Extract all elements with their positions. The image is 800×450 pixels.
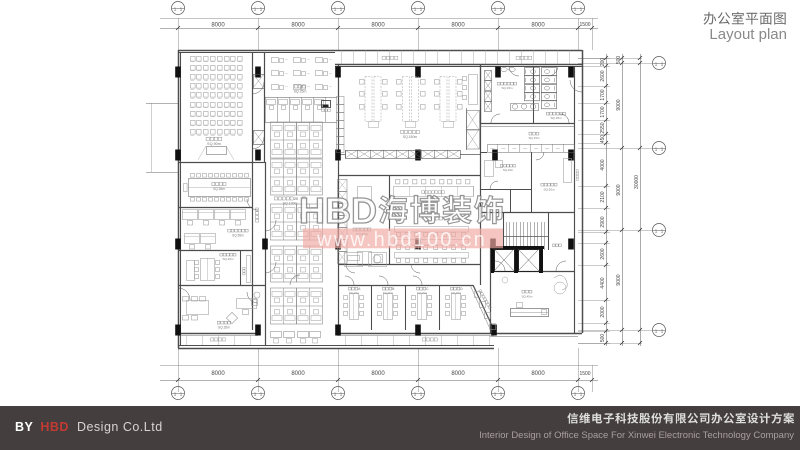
svg-text:1: 1	[655, 328, 658, 333]
svg-text:SQ.18m: SQ.18m	[550, 116, 562, 120]
svg-text:1: 1	[260, 6, 263, 11]
svg-text:1: 1	[655, 61, 658, 66]
svg-text:2600: 2600	[600, 248, 606, 259]
svg-text:1: 1	[661, 228, 664, 233]
svg-text:500: 500	[600, 334, 606, 343]
svg-text:450: 450	[600, 135, 606, 144]
svg-text:1: 1	[174, 6, 177, 11]
svg-text:4000: 4000	[600, 159, 606, 170]
svg-text:8000: 8000	[451, 23, 465, 29]
svg-text:1: 1	[420, 6, 423, 11]
svg-text:SQ.90m: SQ.90m	[207, 142, 221, 146]
svg-text:1: 1	[334, 6, 337, 11]
svg-text:SQ.150m: SQ.150m	[403, 135, 417, 139]
svg-text:SQ.15m: SQ.15m	[451, 291, 462, 295]
svg-text:8000: 8000	[371, 23, 385, 29]
svg-text:1: 1	[340, 391, 343, 396]
svg-text:SQ.50m: SQ.50m	[543, 188, 555, 192]
svg-text:1: 1	[180, 6, 183, 11]
svg-text:1500: 1500	[579, 371, 590, 377]
svg-text:SQ.35m: SQ.35m	[213, 187, 225, 191]
svg-text:1: 1	[254, 6, 257, 11]
svg-text:1: 1	[180, 391, 183, 396]
svg-text:SQ.15m: SQ.15m	[528, 136, 540, 140]
svg-text:1: 1	[494, 391, 497, 396]
svg-text:1: 1	[340, 6, 343, 11]
svg-text:200: 200	[600, 58, 606, 67]
svg-text:8000: 8000	[211, 371, 225, 377]
svg-text:1: 1	[661, 61, 664, 66]
svg-text:SQ.15m: SQ.15m	[417, 291, 428, 295]
svg-text:1: 1	[574, 391, 577, 396]
svg-text:8000: 8000	[531, 371, 545, 377]
svg-text:8000: 8000	[291, 371, 305, 377]
svg-text:SQ.25m: SQ.25m	[222, 257, 234, 261]
svg-text:1: 1	[655, 146, 658, 151]
svg-text:SQ.15m: SQ.15m	[349, 291, 360, 295]
svg-text:1: 1	[574, 6, 577, 11]
svg-text:8000: 8000	[531, 23, 545, 29]
svg-text:2000: 2000	[600, 306, 606, 317]
svg-text:1: 1	[655, 228, 658, 233]
svg-text:1700: 1700	[600, 106, 606, 117]
svg-text:9000: 9000	[616, 184, 622, 195]
svg-text:1: 1	[334, 391, 337, 396]
svg-text:1: 1	[500, 6, 503, 11]
svg-text:2600: 2600	[600, 70, 606, 81]
svg-text:9000: 9000	[616, 99, 622, 110]
svg-text:30000: 30000	[634, 175, 640, 189]
svg-text:2900: 2900	[600, 216, 606, 227]
svg-text:SQ.15m: SQ.15m	[501, 86, 513, 90]
svg-text:9000: 9000	[616, 274, 622, 285]
svg-text:1: 1	[580, 6, 583, 11]
svg-text:SQ.55m: SQ.55m	[232, 234, 244, 238]
svg-text:HBD: HBD	[299, 190, 377, 231]
svg-text:1: 1	[420, 391, 423, 396]
svg-text:1: 1	[174, 391, 177, 396]
svg-text:1: 1	[580, 391, 583, 396]
svg-text:1500: 1500	[579, 22, 590, 28]
svg-text:4400: 4400	[600, 277, 606, 288]
svg-text:SQ.35m: SQ.35m	[218, 326, 230, 330]
svg-text:SQ.25m: SQ.25m	[294, 90, 307, 94]
svg-text:2550: 2550	[600, 122, 606, 133]
svg-text:1: 1	[260, 391, 263, 396]
svg-text:1: 1	[414, 391, 417, 396]
svg-text:SQ.10m: SQ.10m	[503, 168, 514, 172]
svg-text:www.hbd100.cn: www.hbd100.cn	[316, 229, 487, 251]
svg-text:1: 1	[500, 391, 503, 396]
svg-text:1: 1	[661, 328, 664, 333]
svg-text:1: 1	[494, 6, 497, 11]
svg-text:500: 500	[616, 56, 622, 65]
svg-text:1: 1	[661, 146, 664, 151]
svg-text:1700: 1700	[600, 89, 606, 100]
svg-text:8000: 8000	[211, 23, 225, 29]
svg-text:2100: 2100	[600, 191, 606, 202]
svg-text:1: 1	[414, 6, 417, 11]
svg-text:1: 1	[254, 391, 257, 396]
svg-text:SQ.15m: SQ.15m	[383, 291, 394, 295]
svg-text:8000: 8000	[371, 371, 385, 377]
svg-text:8000: 8000	[291, 23, 305, 29]
svg-text:8000: 8000	[451, 371, 465, 377]
svg-text:SQ.120m: SQ.120m	[283, 202, 298, 206]
svg-text:SQ.45m: SQ.45m	[521, 295, 533, 299]
